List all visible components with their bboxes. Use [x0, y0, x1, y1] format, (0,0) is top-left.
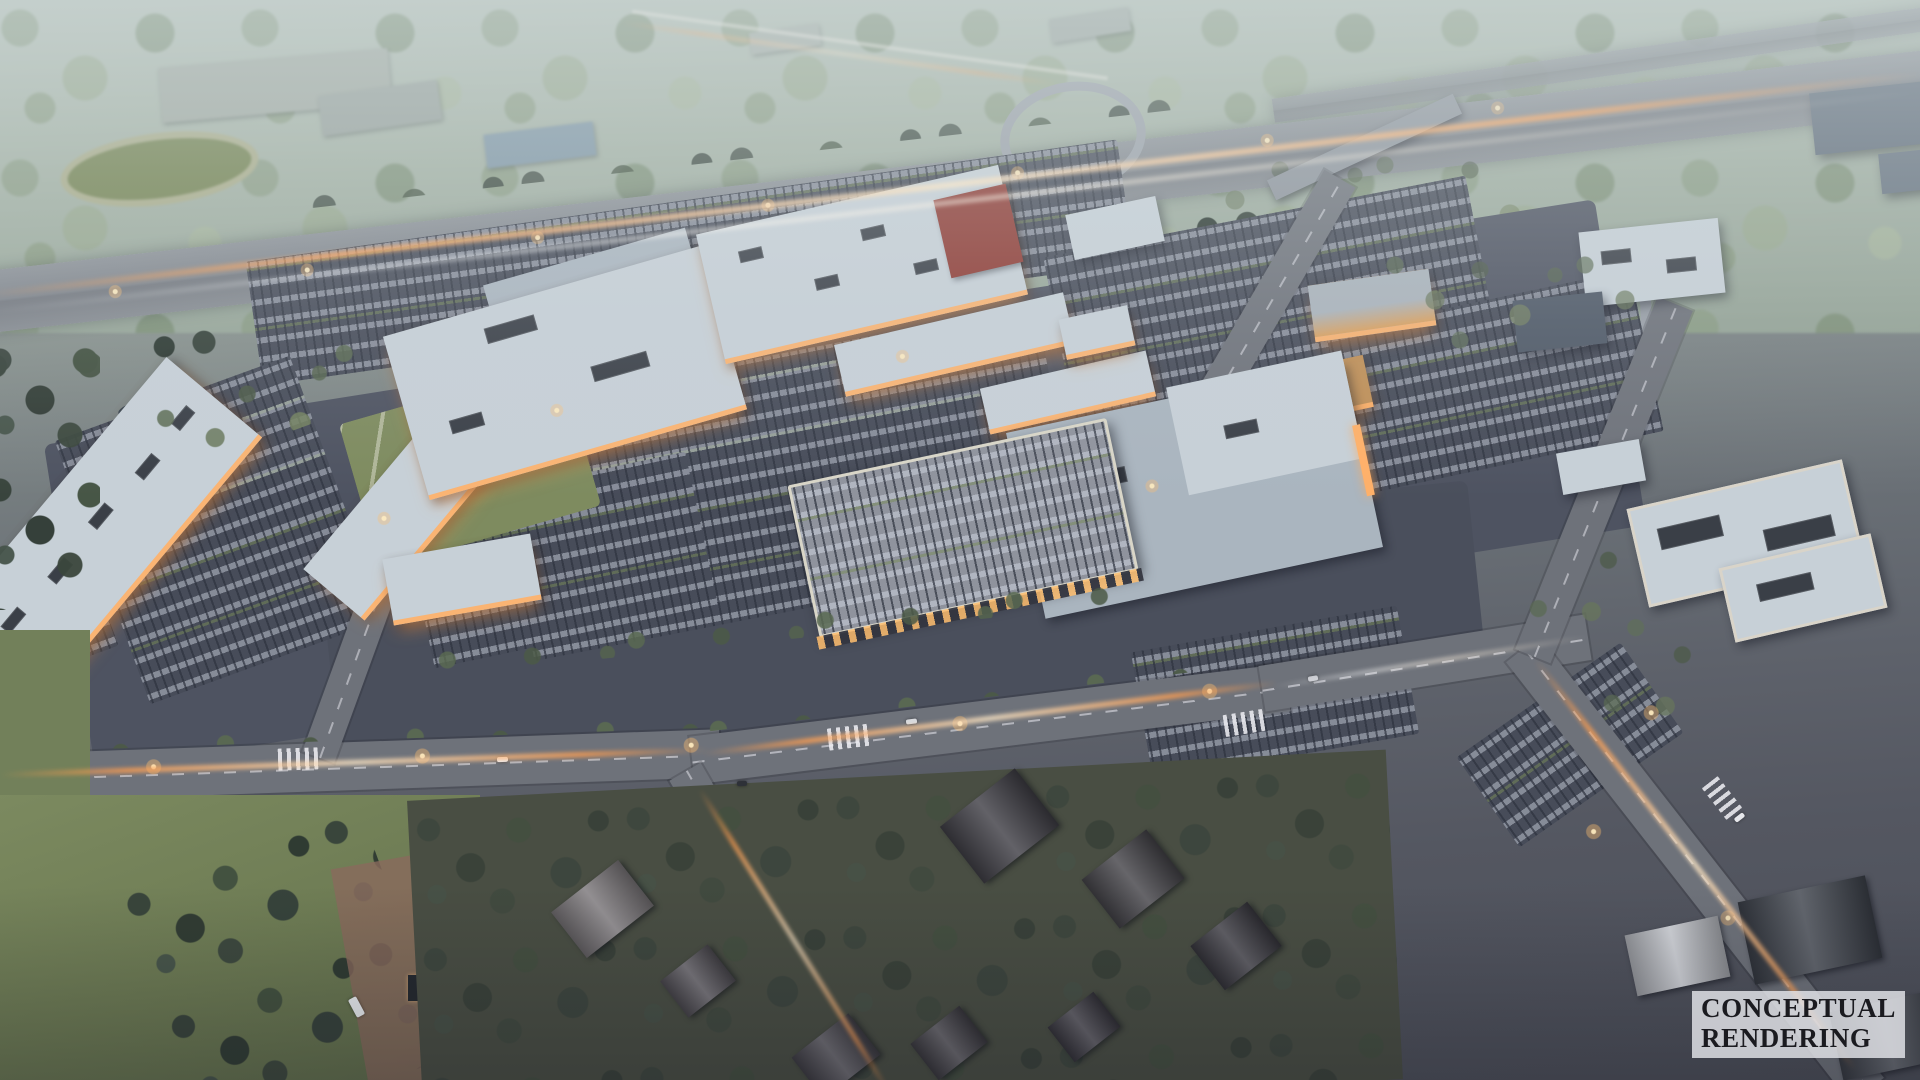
rooftop-unit	[913, 258, 939, 275]
rooftop-unit	[135, 453, 161, 481]
rooftop-unit	[815, 274, 841, 291]
rooftop-unit	[448, 412, 485, 435]
rooftop-unit	[1666, 256, 1697, 273]
rooftop-unit	[591, 351, 651, 382]
crosswalk	[1702, 776, 1742, 820]
meadow	[0, 630, 90, 820]
car	[1734, 812, 1746, 823]
aerial-rendering: CONCEPTUAL RENDERING	[0, 0, 1920, 1080]
rooftop-unit	[860, 224, 886, 241]
rooftop-unit	[484, 314, 538, 344]
watermark-line-2: RENDERING	[1701, 1023, 1896, 1053]
rooftop-panel	[1656, 514, 1723, 550]
conceptual-rendering-label: CONCEPTUAL RENDERING	[1692, 991, 1905, 1058]
office-building	[1878, 146, 1920, 194]
car	[737, 781, 747, 786]
commercial-building	[1625, 916, 1731, 996]
commercial-building	[1738, 875, 1883, 984]
tree-cluster	[0, 330, 100, 610]
rooftop-unit	[738, 246, 764, 263]
watermark-line-1: CONCEPTUAL	[1701, 993, 1896, 1023]
rooftop-panel	[1756, 572, 1815, 602]
tree-cluster	[1380, 240, 1640, 360]
